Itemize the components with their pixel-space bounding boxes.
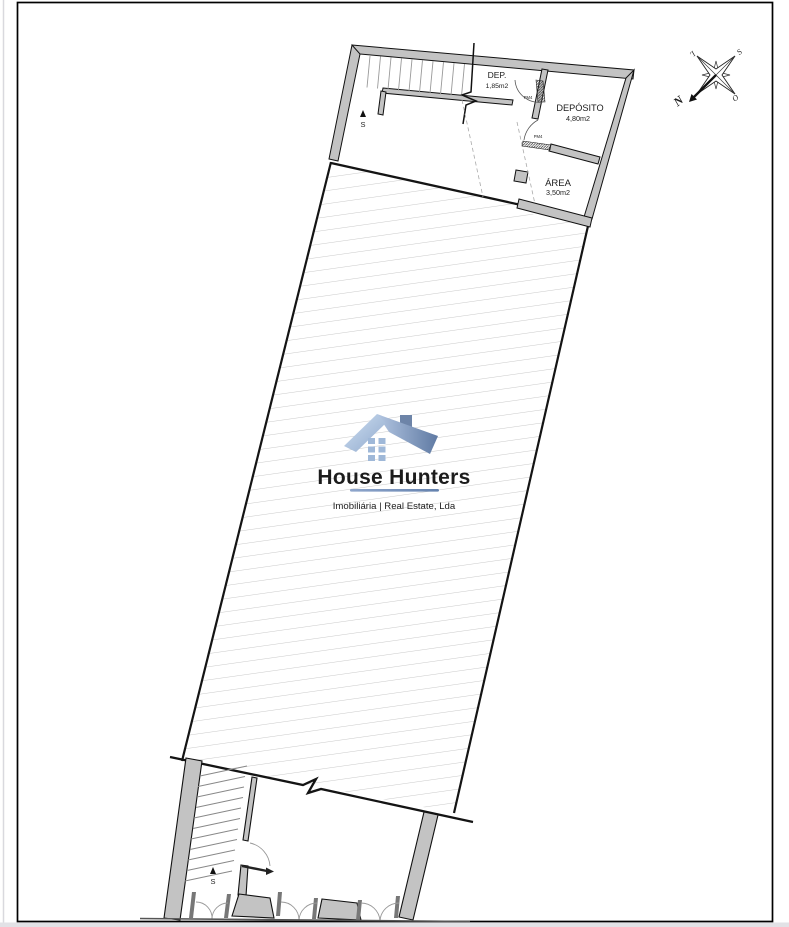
logo-underline bbox=[350, 489, 439, 492]
floor-plan-page: S DEP. 1,85m2 PM4 DEPÓSITO 4,80m2 PM4 ÁR… bbox=[0, 0, 789, 927]
interior-door-swing-arc bbox=[250, 843, 270, 866]
bottom-left-outer-wall bbox=[164, 758, 202, 920]
room-area-area: 3,50m2 bbox=[546, 188, 570, 197]
entrance-door-3-left-arc bbox=[361, 903, 380, 921]
compass-west-label: O bbox=[730, 93, 740, 104]
deposito-bottom-wall bbox=[549, 144, 600, 164]
room-deposito-name: DEPÓSITO bbox=[556, 103, 603, 113]
logo-title: House Hunters bbox=[317, 466, 470, 489]
door-pm4-2-leaf bbox=[522, 141, 551, 150]
stair-landing-wall bbox=[382, 88, 513, 105]
logo-tagline: Imobiliária | Real Estate, Lda bbox=[333, 501, 456, 512]
compass-east-label: L bbox=[688, 48, 698, 59]
compass-south-label: S bbox=[735, 47, 744, 56]
compass-rose: L S O N bbox=[670, 47, 744, 109]
door-pm4-2-label: PM4 bbox=[534, 134, 543, 139]
north-arrow bbox=[694, 75, 716, 97]
main-hall bbox=[170, 162, 588, 822]
room-dep-area: 1,85m2 bbox=[486, 83, 509, 90]
upper-stair-direction: S bbox=[360, 110, 366, 129]
room-deposito-area: 4,80m2 bbox=[566, 114, 590, 123]
door-swing-arrow-icon bbox=[266, 868, 274, 876]
door-pm4-1-label: PM4 bbox=[524, 95, 533, 100]
door-jamb-tabs bbox=[189, 892, 400, 920]
upper-right-outer-wall bbox=[584, 70, 634, 219]
upper-left-outer-wall bbox=[329, 45, 360, 161]
area-column bbox=[514, 170, 528, 183]
entrance-pier-2 bbox=[318, 899, 361, 920]
entrance-pier-1 bbox=[232, 894, 274, 918]
entrance-door-2-left-arc bbox=[281, 902, 299, 920]
room-labels: DEP. 1,85m2 PM4 DEPÓSITO 4,80m2 PM4 ÁREA… bbox=[486, 70, 604, 197]
pier1-stem-wall bbox=[238, 865, 248, 896]
compass-north-label: N bbox=[670, 92, 687, 110]
page-bottom-edge bbox=[0, 923, 789, 927]
floor-plan-drawing: S DEP. 1,85m2 PM4 DEPÓSITO 4,80m2 PM4 ÁR… bbox=[0, 0, 789, 927]
stair-up-label: S bbox=[210, 877, 215, 886]
bottom-right-outer-wall bbox=[399, 812, 438, 920]
stair-up-arrow-icon bbox=[360, 110, 366, 117]
stair-up-label: S bbox=[360, 120, 365, 129]
entrance-door-1-left-arc bbox=[196, 902, 212, 919]
projection-dashed-lines bbox=[462, 100, 535, 204]
stair-landing-wall-stub bbox=[378, 91, 386, 115]
stair-up-arrow-icon bbox=[210, 867, 216, 874]
room-dep-name: DEP. bbox=[488, 70, 507, 80]
bottom-stair-right-wall bbox=[243, 777, 257, 841]
